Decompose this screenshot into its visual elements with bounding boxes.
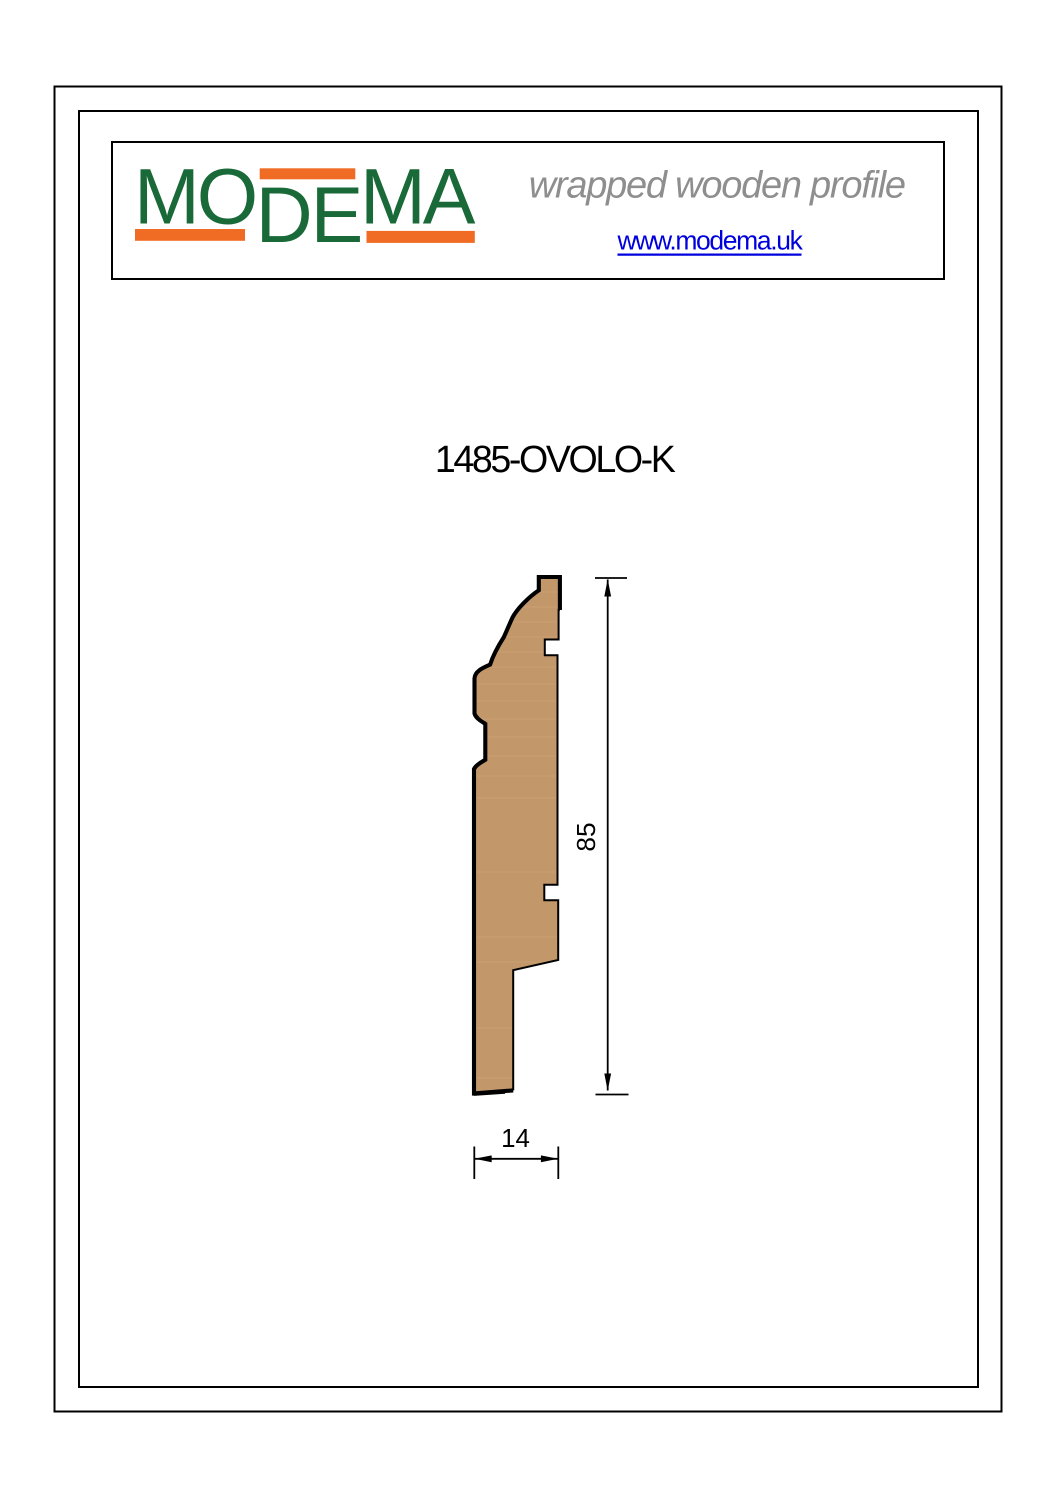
svg-text:MA: MA bbox=[360, 151, 476, 240]
svg-text:DE: DE bbox=[256, 170, 362, 259]
svg-text:14: 14 bbox=[501, 1125, 530, 1153]
svg-text:MO: MO bbox=[134, 151, 255, 240]
svg-text:85: 85 bbox=[571, 822, 601, 851]
svg-text:1485-OVOLO-K: 1485-OVOLO-K bbox=[435, 438, 676, 480]
svg-text:www.modema.uk: www.modema.uk bbox=[617, 226, 804, 256]
svg-text:wrapped wooden profile: wrapped wooden profile bbox=[529, 165, 905, 207]
